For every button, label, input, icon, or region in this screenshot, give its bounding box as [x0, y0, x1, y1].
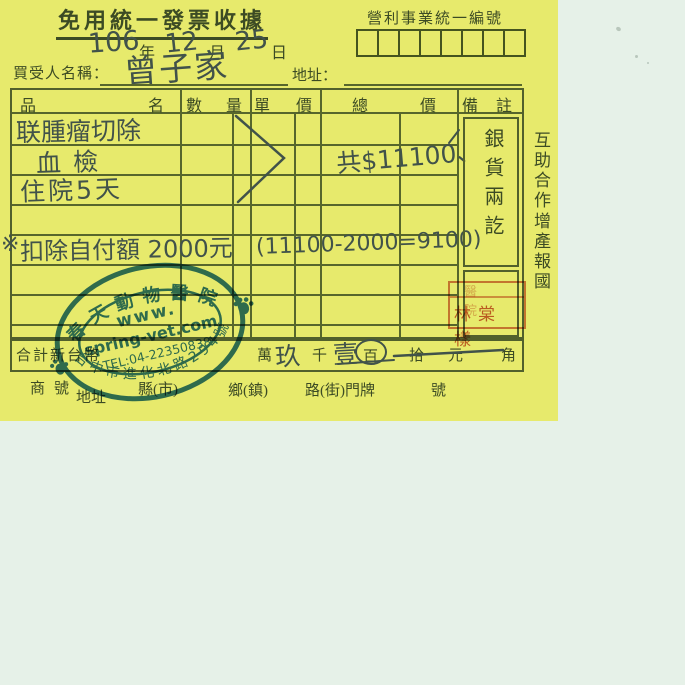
tax-id-box	[398, 29, 421, 57]
footer-number: 號	[431, 379, 446, 400]
settlement-text: 銀貨兩訖	[478, 128, 507, 244]
digit-one-handwritten: 壹	[332, 334, 359, 371]
scan-speck	[615, 26, 621, 32]
deduction-note-mark: ※	[1, 232, 19, 257]
col-header-unit-price: 價	[296, 92, 312, 116]
tax-id-boxes	[356, 29, 526, 57]
col-line	[320, 90, 322, 339]
tax-id-box	[356, 29, 379, 57]
footer-address-label: 地址	[76, 386, 106, 407]
scanned-receipt-image: 免用統一發票收據 106 年 12 月 25 日 營利事業統一編號 買受人名稱：…	[0, 0, 685, 685]
footer-shop: 商	[30, 377, 45, 398]
row-line	[12, 324, 457, 326]
buyer-label: 買受人名稱：	[13, 62, 109, 83]
date-day-unit: 日	[271, 39, 287, 63]
scan-speck	[647, 62, 649, 64]
red-name-seal: 醫院 林棠樣	[448, 281, 526, 329]
tax-id-box	[482, 29, 505, 57]
address-underline	[344, 84, 522, 86]
slogan-mutual-cooperation: 互助合作	[528, 131, 553, 211]
tax-id-box	[377, 29, 400, 57]
red-seal-name: 林棠樣	[454, 300, 524, 350]
tax-id-box	[419, 29, 442, 57]
footer-road: 路(街)門牌	[305, 379, 375, 400]
col-header-remarks: 備	[462, 92, 478, 116]
col-header-total-price: 總	[352, 92, 368, 116]
col-line	[180, 90, 182, 339]
tax-id-label: 營利事業統一編號	[367, 7, 503, 28]
col-line	[250, 90, 252, 339]
date-day-handwritten: 25	[234, 24, 270, 57]
col-header-qty: 量	[226, 92, 242, 116]
subcol-line	[294, 112, 296, 339]
footer-shop-suffix: 號	[54, 377, 69, 398]
tax-id-box	[503, 29, 526, 57]
col-header-total-price: 價	[420, 92, 436, 116]
unit-wan: 萬	[257, 344, 272, 365]
unit-shi: 拾	[409, 344, 424, 365]
tax-id-box	[461, 29, 484, 57]
unit-qian: 千	[312, 344, 327, 365]
digit-nine-handwritten: 玖	[274, 336, 301, 374]
footer-county: 縣(市)	[138, 378, 178, 399]
col-header-unit-price: 單	[254, 92, 270, 116]
footer-township: 鄉(鎮)	[228, 379, 268, 400]
buyer-name-underline	[100, 84, 288, 86]
col-header-item: 名	[148, 92, 164, 116]
address-label: 地址：	[292, 64, 337, 85]
subcol-line	[232, 112, 234, 339]
unit-bai: 百	[363, 345, 378, 366]
tax-id-box	[440, 29, 463, 57]
item-hospitalization: 住院5天	[19, 169, 123, 209]
receipt-paper: 免用統一發票收據 106 年 12 月 25 日 營利事業統一編號 買受人名稱：…	[0, 0, 558, 421]
grand-total-label: 合計新台幣	[16, 344, 101, 365]
scan-speck	[635, 55, 638, 58]
col-header-remarks: 註	[496, 92, 512, 116]
deduction-note-text: 扣除自付額 2000元	[20, 228, 233, 267]
col-header-qty: 數	[186, 92, 202, 116]
slogan-increase-production: 增產報國	[528, 212, 553, 292]
row-line	[12, 294, 457, 296]
